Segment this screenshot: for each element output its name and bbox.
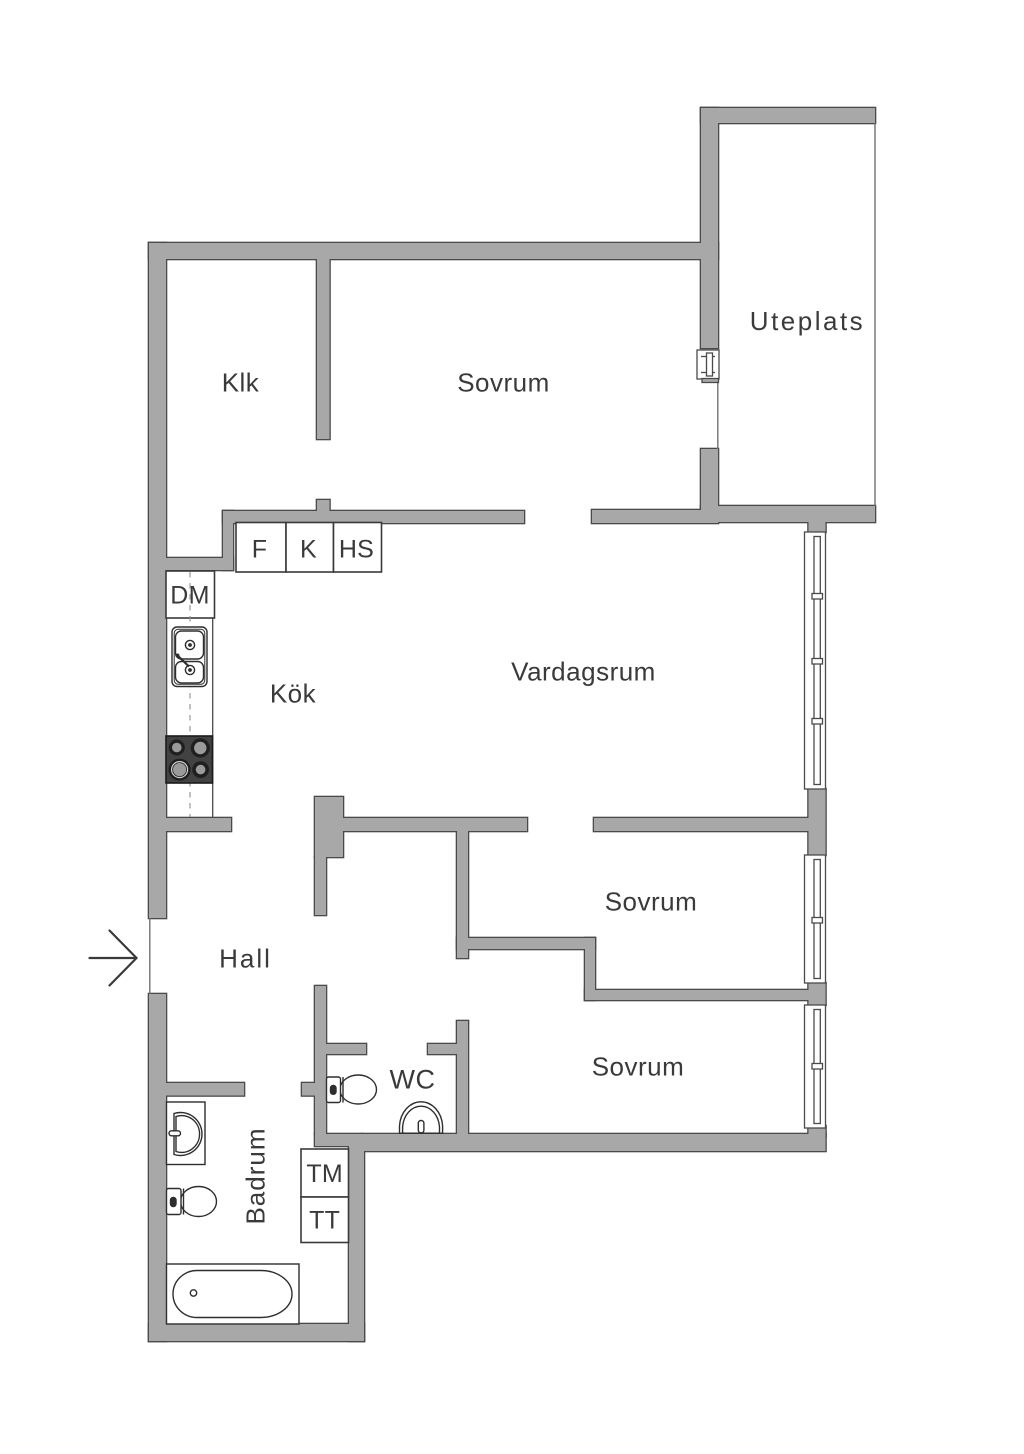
svg-text:TM: TM <box>306 1160 343 1188</box>
svg-text:Sovrum: Sovrum <box>605 887 698 917</box>
svg-text:Badrum: Badrum <box>240 1127 270 1224</box>
svg-text:HS: HS <box>339 536 374 564</box>
svg-text:Hall: Hall <box>219 944 272 974</box>
svg-text:F: F <box>252 536 268 564</box>
svg-text:Vardagsrum: Vardagsrum <box>511 657 656 687</box>
svg-text:Sovrum: Sovrum <box>457 368 550 398</box>
svg-text:Sovrum: Sovrum <box>592 1052 685 1082</box>
svg-text:TT: TT <box>309 1207 340 1235</box>
svg-text:K: K <box>300 536 317 564</box>
svg-text:Klk: Klk <box>222 368 260 398</box>
svg-text:Uteplats: Uteplats <box>750 306 865 336</box>
svg-text:Kök: Kök <box>270 679 317 709</box>
svg-text:WC: WC <box>390 1065 436 1095</box>
